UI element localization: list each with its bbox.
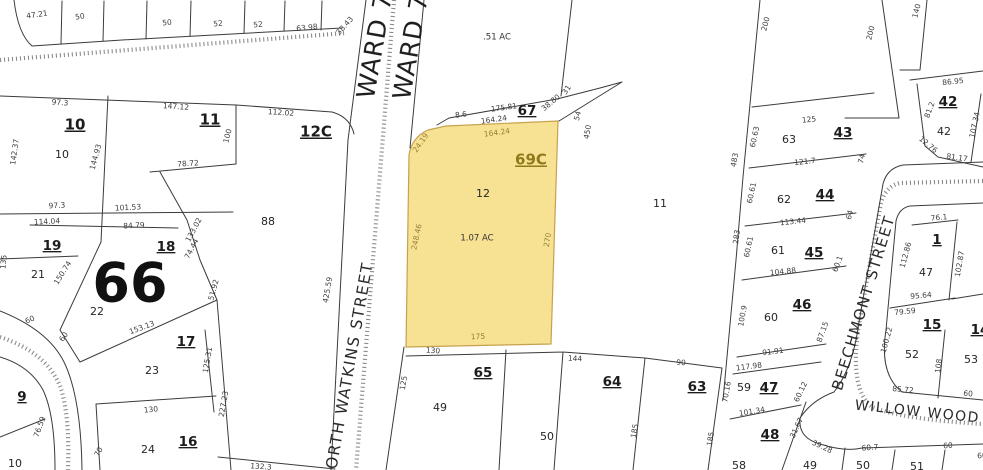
dimension-label: 70 — [92, 445, 105, 458]
dimension-label: 60.63 — [748, 125, 761, 148]
dimension-label: 227.23 — [217, 390, 230, 418]
dimension-label: 130 — [143, 404, 158, 414]
parcel-number-label: 12 — [476, 187, 490, 200]
dimension-label: 200 — [759, 16, 771, 32]
parcel-number-label: 53 — [964, 353, 978, 366]
parcel11-west-edge — [561, 0, 572, 96]
parcel-number-label: 51 — [910, 460, 924, 470]
dimension-label: 31.67 — [788, 416, 805, 439]
curved-road-centerline — [0, 337, 68, 470]
parcel-block-label: 17 — [177, 334, 196, 350]
map-labels: WARD 7WARD 7NORTH WATKINS STREETBEECHMON… — [0, 0, 983, 470]
bottom-center-block — [406, 350, 722, 470]
parcel-block-label: 43 — [834, 125, 853, 141]
parcel-block-label: 11 — [200, 111, 221, 129]
dimension-label: 60.7 — [861, 442, 879, 452]
dimension-label: 114.04 — [34, 216, 61, 226]
dimension-label: 8.6 — [454, 109, 467, 119]
dimension-label: 140 — [910, 3, 922, 19]
dimension-label: 107.34 — [967, 111, 981, 139]
parcel-number-label: 24 — [141, 443, 155, 456]
street-name-label: WILLOW WOOD AVE — [854, 398, 983, 431]
parcel-number-label: 58 — [732, 459, 746, 470]
dimension-label: 79.59 — [894, 306, 917, 317]
dimension-label: 87.15 — [815, 320, 831, 343]
parcel-number-label: 23 — [145, 364, 159, 377]
dimension-label: 85.72 — [892, 384, 914, 395]
dimension-label: 50 — [162, 18, 173, 28]
dimension-label: 104.88 — [769, 266, 796, 278]
parcel-block-label: 9 — [17, 389, 26, 405]
parcel-number-label: 22 — [90, 305, 104, 318]
parcel-block-label: 63 — [688, 379, 707, 395]
dimension-label: 84.79 — [123, 220, 145, 230]
dimension-label: 60.1 — [830, 254, 844, 273]
dimension-label: 185 — [705, 431, 716, 447]
dimension-label: 50 — [75, 11, 86, 21]
dimension-label: 78.72 — [177, 158, 199, 168]
parcel-number-label: 42 — [937, 125, 951, 138]
parcel-block-label: 16 — [179, 434, 198, 450]
dimension-label: 76.1 — [930, 212, 948, 222]
dimension-label: 135 — [0, 254, 9, 269]
dimension-label: 91.91 — [762, 346, 785, 358]
parcel-number-label: 49 — [803, 459, 817, 470]
dimension-label: 112.86 — [898, 241, 914, 269]
parcel-number-label: 50 — [540, 430, 554, 443]
cadastral-plat-map: WARD 7WARD 7NORTH WATKINS STREETBEECHMON… — [0, 0, 983, 470]
parcel-number-label: 49 — [433, 401, 447, 414]
parcel-block-label: 1 — [932, 232, 941, 248]
dimension-label: 38.80 — [540, 92, 562, 113]
dimension-label: 101.53 — [115, 202, 142, 212]
dimension-label: 81.2 — [922, 100, 936, 119]
dimension-label: 147.12 — [163, 101, 190, 112]
dimension-label: 39.28 — [811, 438, 834, 455]
dimension-label: 60 — [57, 330, 70, 343]
dimension-label: 144.93 — [88, 143, 104, 171]
acreage-label: 1.07 AC — [460, 234, 493, 244]
acreage-label: .51 AC — [483, 33, 511, 43]
parcel-number-label: 11 — [653, 197, 667, 210]
dimension-label: 47.21 — [26, 9, 49, 21]
dimension-label: 74 — [856, 153, 867, 165]
dimension-label: 112.02 — [268, 107, 295, 118]
dimension-label: 132.3 — [250, 461, 272, 470]
dimension-label: 450 — [582, 124, 593, 140]
lot10-11-divider — [101, 96, 108, 242]
dimension-label: 90 — [676, 358, 686, 367]
parcel-block-label: 47 — [760, 380, 779, 396]
dimension-label: 425.59 — [321, 276, 334, 304]
dimension-label: 108 — [933, 358, 944, 374]
dimension-label: 175 — [471, 332, 486, 342]
dimension-label: 113.44 — [779, 216, 806, 228]
parcel-block-label: 48 — [761, 427, 780, 443]
parcel-block-label: 64 — [603, 374, 622, 390]
dimension-label: 97.3 — [51, 97, 69, 107]
dimension-label: 76.59 — [32, 415, 48, 438]
dimension-label: 200 — [864, 25, 876, 41]
dimension-label: 142.37 — [8, 138, 21, 165]
dimension-label: 54 — [572, 110, 583, 122]
dimension-label: 185 — [629, 423, 640, 439]
dimension-label: 130 — [426, 346, 441, 356]
dimension-label: 121.7 — [794, 156, 817, 167]
dimension-label: 101.34 — [738, 405, 766, 418]
top-block-outline — [14, 0, 342, 46]
dimension-label: 52 — [253, 20, 264, 30]
dimension-label: 52 — [213, 19, 224, 29]
dimension-label: 70.16 — [720, 380, 733, 403]
lot16-block — [96, 396, 335, 470]
dimension-label: 60 — [943, 441, 953, 451]
parcel-block-label: 45 — [805, 245, 824, 261]
dimension-label: 283 — [731, 229, 742, 245]
dimension-label: 100 — [221, 128, 233, 144]
parcel-block-label: 12C — [300, 123, 332, 141]
dimension-label: 125.31 — [201, 346, 214, 374]
dimension-label: 60.12 — [792, 380, 809, 403]
parcel-number-label: 50 — [856, 459, 870, 470]
parcel-block-label: 19 — [43, 238, 62, 254]
dimension-label: 60 — [24, 313, 37, 325]
parcel-number-label: 63 — [782, 133, 796, 146]
dimension-label: 38.43 — [334, 15, 355, 37]
dimension-label: 60 — [963, 389, 974, 399]
parcel-number-label: 88 — [261, 215, 275, 228]
plat-map-viewport: WARD 7WARD 7NORTH WATKINS STREETBEECHMON… — [0, 0, 983, 470]
dimension-label: 175.81 — [490, 101, 517, 114]
dimension-label: 60.61 — [745, 181, 758, 204]
dimension-label: 100.9 — [736, 304, 749, 327]
parcel-number-label: 61 — [771, 244, 785, 257]
dimension-label: 483 — [729, 152, 740, 168]
parcel-number-label: 59 — [737, 381, 751, 394]
parcel-number-label: 52 — [905, 348, 919, 361]
dimension-label: 125 — [801, 114, 816, 124]
parcel-number-label: 21 — [31, 268, 45, 281]
parcel-number-label: 60 — [764, 311, 778, 324]
dimension-label: 100.22 — [879, 326, 895, 354]
parcel-number-label: 10 — [55, 148, 69, 161]
beechmont-willow-centerline — [856, 181, 983, 424]
dimension-label: 97.3 — [48, 201, 65, 211]
parcel-block-label: 10 — [65, 116, 86, 134]
parcel-block-label: 42 — [939, 94, 958, 110]
dimension-label: 81.17 — [946, 152, 969, 164]
dimension-label: 60.61 — [742, 235, 755, 258]
parcel-number-label: 10 — [8, 457, 22, 470]
parcel-block-label: 65 — [474, 365, 493, 381]
dimension-label: 125 — [398, 375, 409, 391]
parcel-block-label: 69C — [515, 151, 547, 169]
dimension-label: 144 — [568, 354, 583, 364]
parcel-block-label: 44 — [816, 187, 835, 203]
dimension-label: 64 — [844, 209, 855, 221]
dimension-label: 150.74 — [52, 259, 74, 286]
parcel-block-label: 15 — [923, 317, 942, 333]
parcel-number-label: 47 — [919, 266, 933, 279]
parcel-number-label: 62 — [777, 193, 791, 206]
dimension-label: 51.92 — [206, 278, 220, 301]
east-strip-lines — [205, 300, 231, 470]
dimension-label: 95.64 — [910, 290, 932, 301]
parcel-block-label: 46 — [793, 297, 812, 313]
dimension-label: 60 — [977, 451, 983, 461]
parcel-block-label: 14 — [971, 322, 983, 338]
dimension-label: 63.98 — [296, 22, 319, 33]
parcel-block-label: 67 — [518, 103, 537, 119]
dimension-label: 102.87 — [953, 250, 966, 278]
top-block-dividers — [61, 1, 322, 44]
dimension-label: 86.95 — [942, 76, 965, 87]
